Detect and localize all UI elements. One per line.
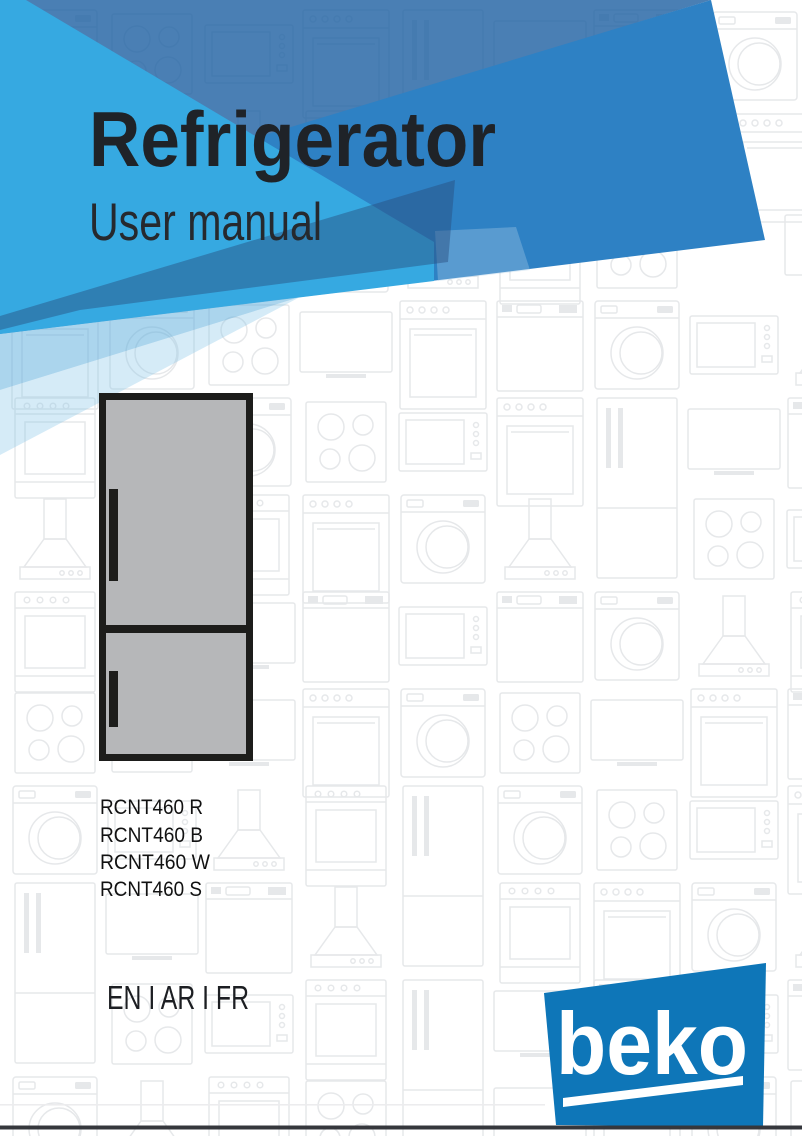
svg-text:RCNT460 W: RCNT460 W	[100, 851, 210, 874]
svg-text:beko: beko	[556, 994, 748, 1093]
svg-text:Refrigerator: Refrigerator	[89, 95, 496, 183]
svg-text:RCNT460 B: RCNT460 B	[100, 824, 203, 847]
svg-text:RCNT460 S: RCNT460 S	[100, 878, 202, 901]
svg-text:EN I AR I FR: EN I AR I FR	[107, 979, 249, 1016]
svg-text:RCNT460 R: RCNT460 R	[100, 796, 203, 819]
svg-text:User manual: User manual	[89, 193, 322, 252]
